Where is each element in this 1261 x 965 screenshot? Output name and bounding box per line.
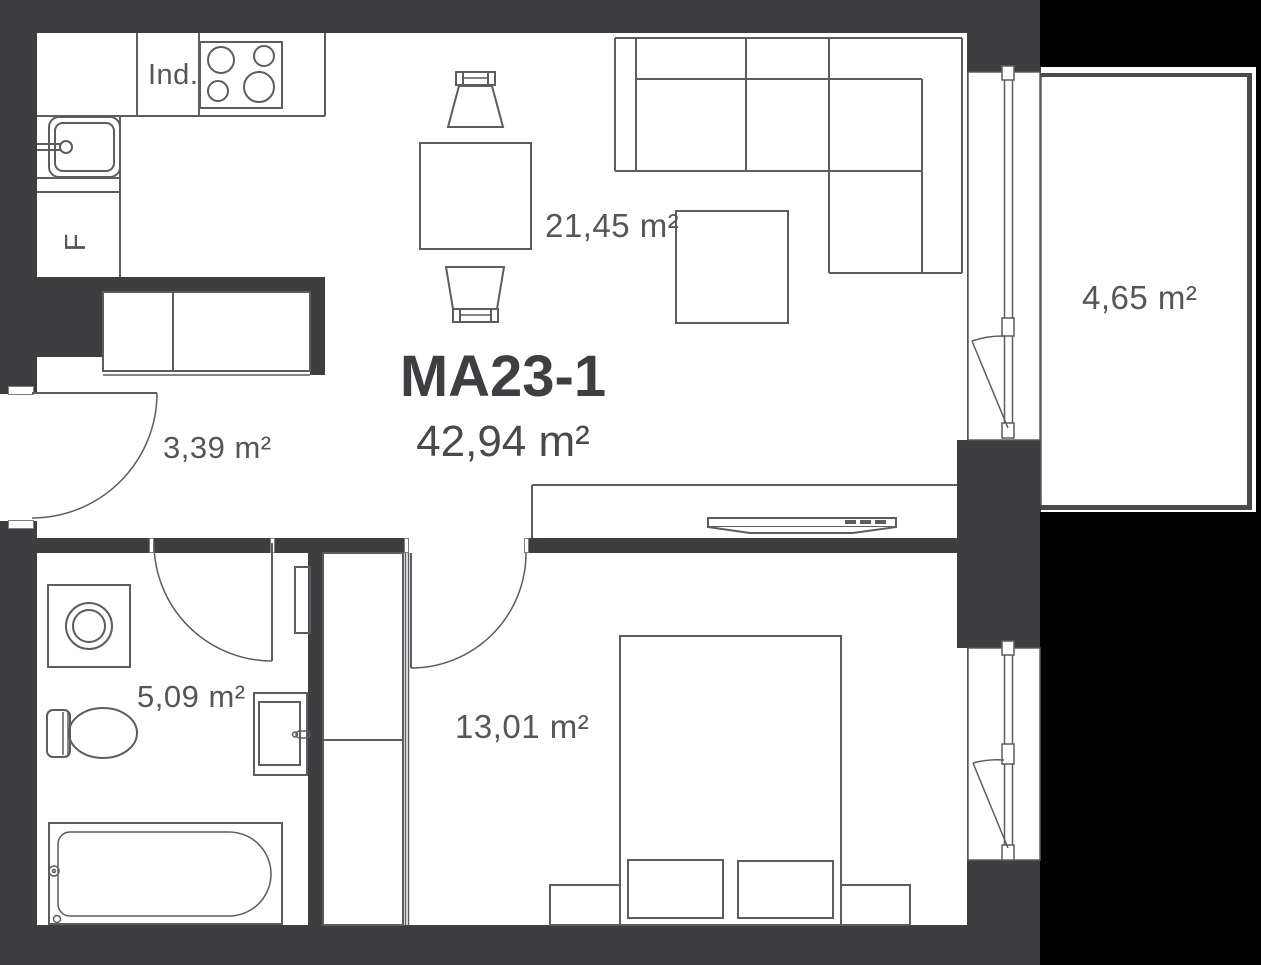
bathroom-sink-icon xyxy=(254,693,310,775)
bathroom-area-label: 5,09 m² xyxy=(137,681,246,714)
double-bed xyxy=(620,636,841,925)
toilet-icon xyxy=(47,708,137,758)
entrance-door xyxy=(32,393,157,518)
bedroom-window xyxy=(968,641,1040,860)
induction-hob-icon xyxy=(200,42,282,108)
washing-machine-icon xyxy=(48,585,130,667)
total-area: 42,94 m² xyxy=(343,420,663,464)
living-kitchen-area-label: 21,45 m² xyxy=(545,209,679,244)
floorplan-canvas: Ind. F 21,45 m² 3,39 m² 5,09 m² 13,01 m²… xyxy=(0,0,1261,965)
balcony-door xyxy=(972,336,1008,428)
coffee-table xyxy=(676,211,788,323)
tv-icon xyxy=(708,518,896,533)
bedroom-door xyxy=(411,553,526,668)
bedroom-wardrobe xyxy=(323,553,409,925)
hall-area-label: 3,39 m² xyxy=(163,432,272,465)
plan-title-block: MA23-1 42,94 m² xyxy=(343,348,663,464)
balcony-area-label: 4,65 m² xyxy=(1082,281,1197,316)
furniture-layer xyxy=(0,0,1261,965)
living-window xyxy=(968,66,1040,440)
nightstand-left xyxy=(550,885,620,925)
bathtub-icon xyxy=(49,823,282,924)
fridge-label: F xyxy=(61,221,91,251)
bedroom-area-label: 13,01 m² xyxy=(455,710,589,745)
nightstand-right xyxy=(841,885,910,925)
kitchen-sink-icon xyxy=(37,117,120,177)
bathroom-shelf xyxy=(295,567,310,633)
hall-closet xyxy=(103,292,310,375)
induction-hob-label: Ind. xyxy=(148,60,198,90)
unit-name: MA23-1 xyxy=(343,348,663,406)
dining-table xyxy=(420,143,531,249)
chair-bottom xyxy=(446,267,504,322)
chair-top xyxy=(448,72,503,127)
bathroom-door xyxy=(154,543,272,661)
